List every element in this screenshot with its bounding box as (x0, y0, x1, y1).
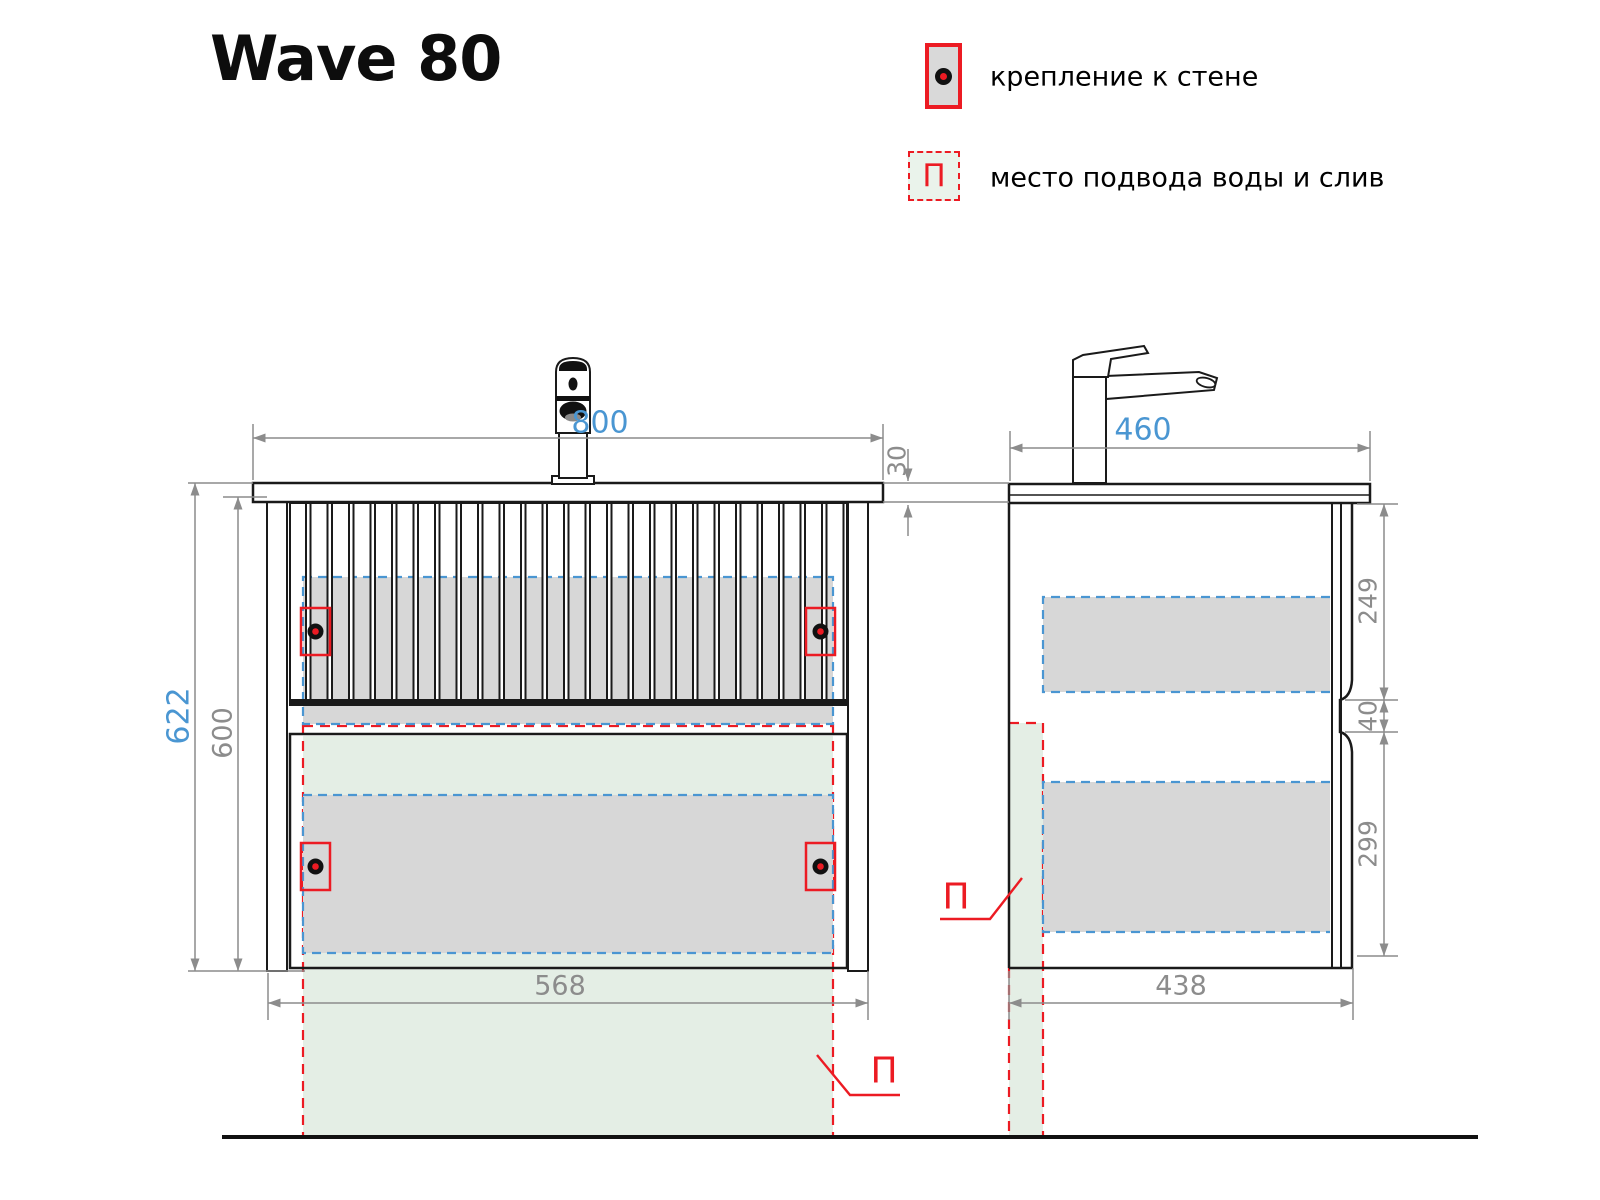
water-zone-side (1009, 723, 1043, 1137)
dim-side-upper-zone: 249 (1354, 577, 1383, 625)
mount-zone-lower-side (1043, 782, 1330, 932)
dim-side-depth: 460 (1114, 413, 1171, 448)
slatted-drawer-front (290, 503, 847, 699)
dim-side-lower-zone: 299 (1354, 820, 1383, 868)
dim-side-gap: 40 (1354, 700, 1383, 732)
mount-dot-icon (935, 68, 952, 85)
water-supply-marker-side: П (942, 877, 969, 918)
dim-front-width: 800 (571, 406, 628, 441)
legend-water-supply-label: место подвода воды и слив (990, 163, 1384, 194)
water-supply-marker-front: П (870, 1051, 897, 1092)
dim-front-width-bottom: 568 (534, 971, 586, 1002)
countertop-side (1009, 484, 1370, 503)
countertop-front (253, 483, 883, 502)
legend-wall-mount-icon (925, 43, 962, 109)
front-view-drawing (253, 358, 883, 1137)
mount-zone-lower-front (303, 795, 833, 953)
mount-zone-upper-side (1043, 597, 1330, 692)
dim-front-height-body: 600 (208, 707, 239, 759)
legend-wall-mount-label: крепление к стене (990, 62, 1258, 93)
dim-side-depth-bottom: 438 (1155, 971, 1207, 1002)
legend-water-supply-icon: П (908, 151, 960, 201)
page-title: Wave 80 (210, 22, 501, 95)
dim-countertop-thickness: 30 (883, 445, 912, 477)
dim-front-height-total: 622 (162, 687, 197, 744)
technical-drawing-page: Wave 80 крепление к стене П место подвод… (0, 0, 1600, 1200)
legend-water-supply-letter: П (922, 158, 945, 194)
side-view-drawing (1009, 346, 1370, 1137)
